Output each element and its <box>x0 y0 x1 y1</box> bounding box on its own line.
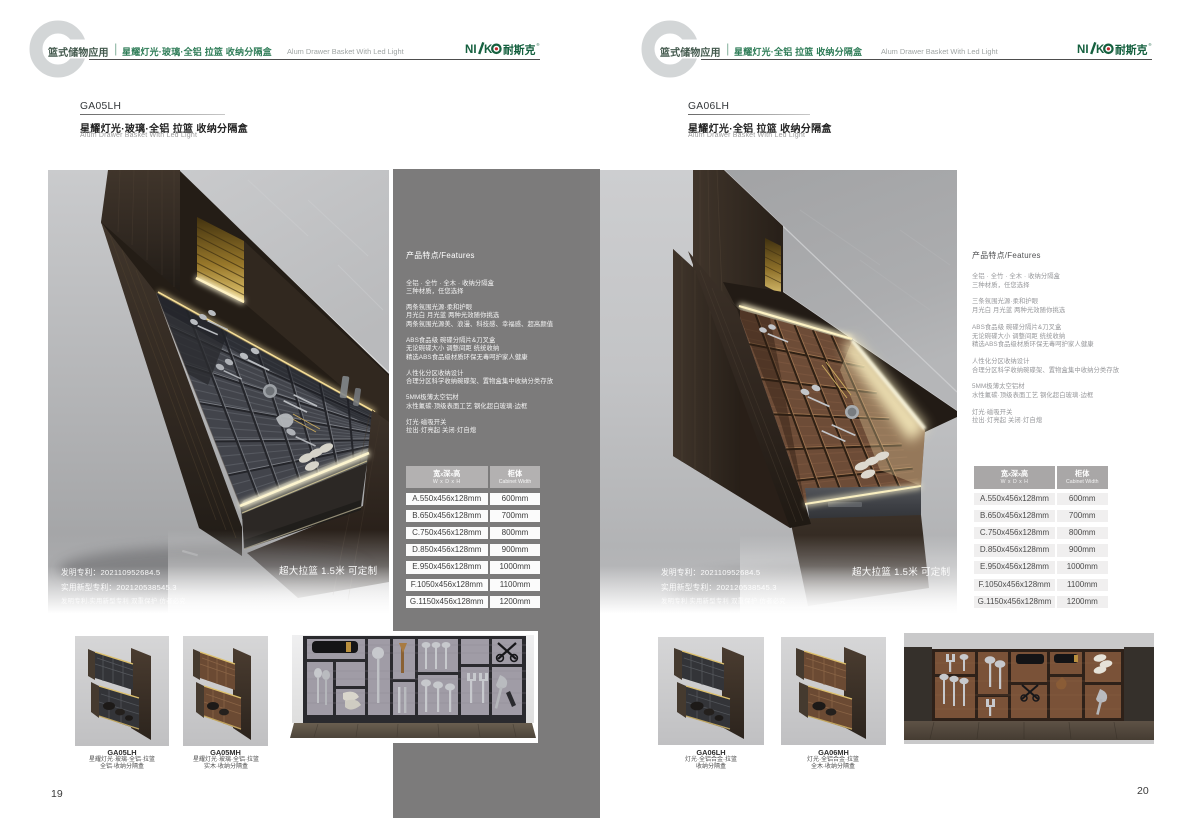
svg-text:耐斯克: 耐斯克 <box>1115 42 1148 56</box>
svg-text:®: ® <box>537 42 540 47</box>
svg-text:NI: NI <box>465 44 477 56</box>
svg-text:®: ® <box>1149 42 1152 47</box>
svg-text:耐斯克: 耐斯克 <box>503 42 536 56</box>
svg-text:NI: NI <box>1077 44 1089 56</box>
